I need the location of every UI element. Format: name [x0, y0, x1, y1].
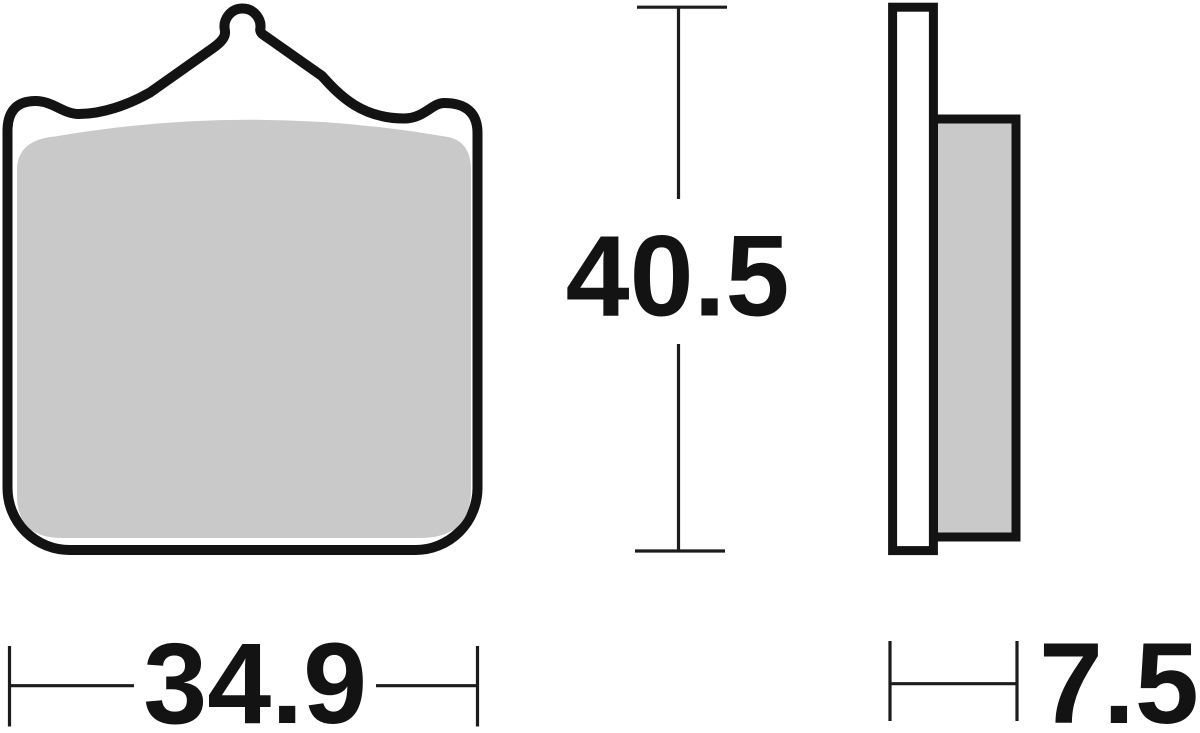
svg-text:40.5: 40.5 [566, 213, 790, 341]
svg-text:34.9: 34.9 [143, 620, 367, 733]
svg-text:7.5: 7.5 [1039, 620, 1199, 733]
